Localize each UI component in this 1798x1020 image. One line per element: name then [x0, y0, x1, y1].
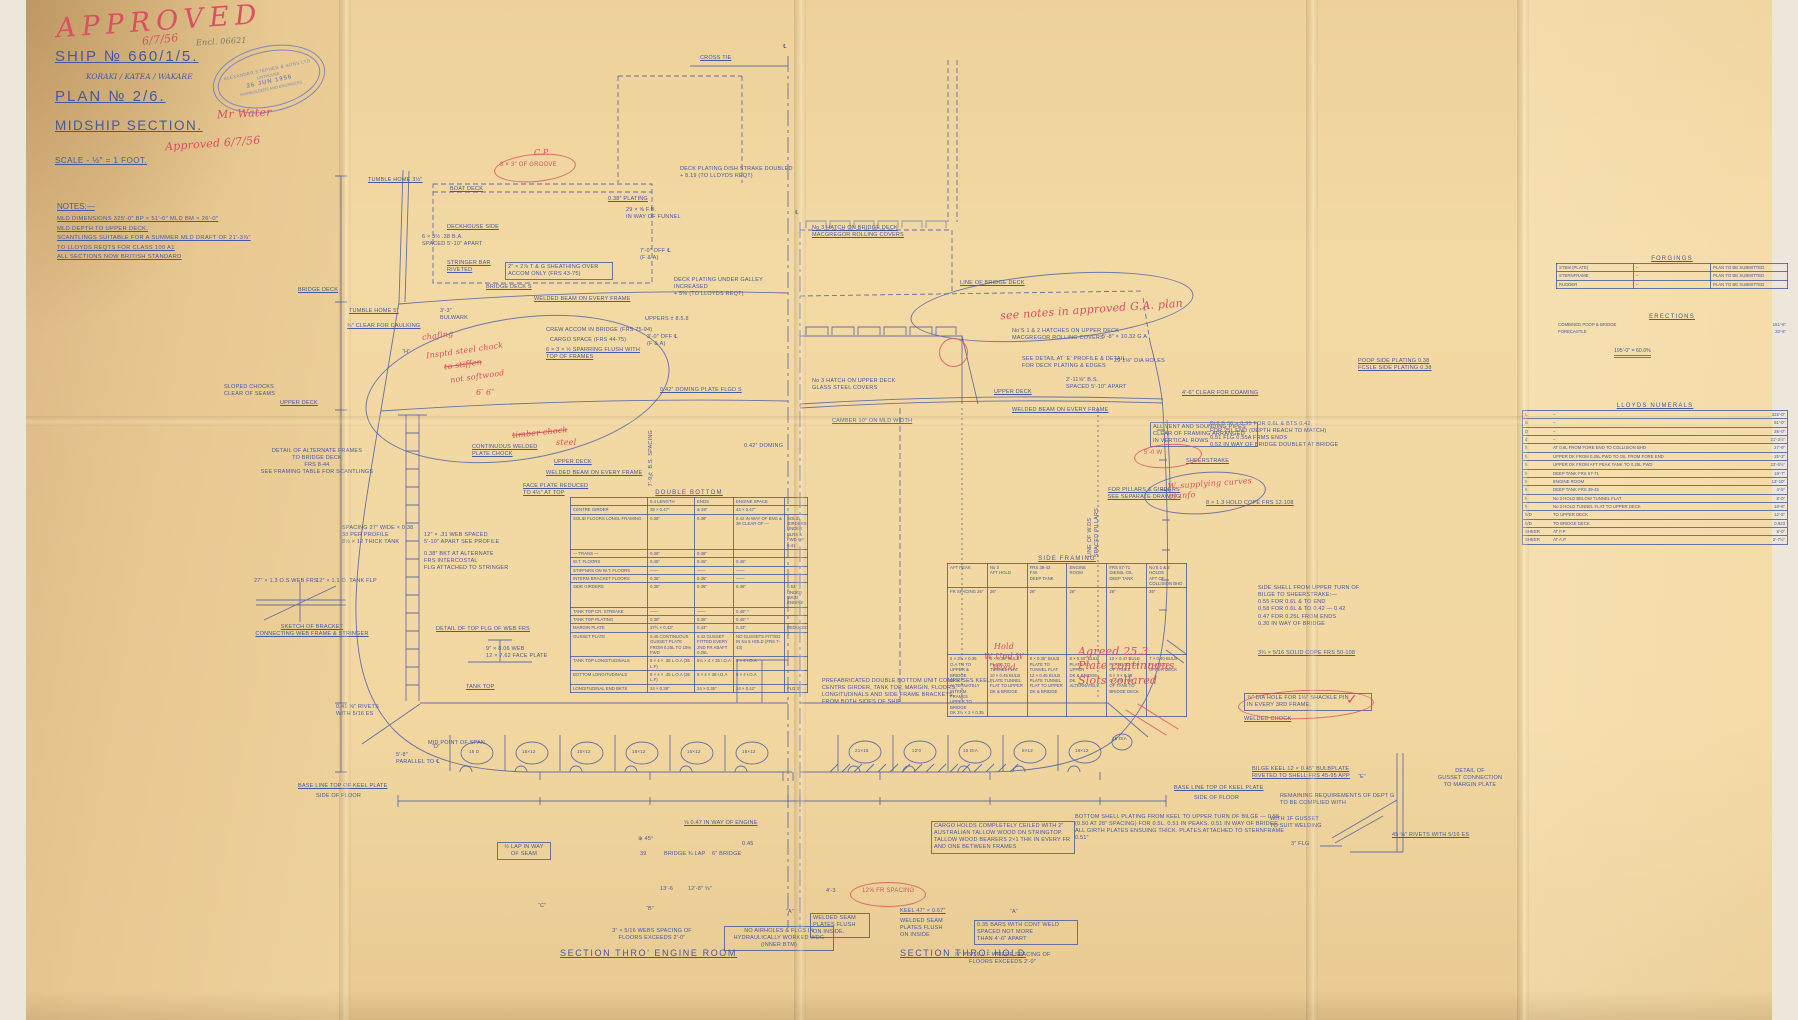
- annotation: 0.42″ DOMING PLATE FLGD S: [660, 387, 742, 394]
- annotation: “C”: [538, 903, 546, 910]
- double-bottom-title: DOUBLE BOTTOM: [570, 490, 808, 496]
- annotation: 0.38″ PLATING: [608, 196, 648, 203]
- annotation: SIDE OF FLOOR: [1194, 795, 1239, 802]
- annotation: 4′-6″ CLEAR FOR COAMING: [1182, 390, 1258, 397]
- annotation: 27″ × 1.3 O.S WEB FRS: [254, 578, 318, 585]
- annotation: BRIDGE DECK S: [486, 284, 532, 291]
- annotation: DECK PLATING UNDER GALLEY INCREASED + 5%…: [674, 277, 796, 298]
- annotation: WELDED BEAM ON EVERY FRAME: [546, 470, 642, 477]
- annotation: TANK TOP: [466, 684, 495, 691]
- annotation: KEEL 47″ × 0.67″: [900, 908, 946, 915]
- annotation: 3′-3″ BULWARK: [440, 308, 474, 322]
- annotation: 15×12: [687, 749, 701, 755]
- table-row: h/DTO UPPER DECK12′-5″: [1523, 511, 1788, 519]
- annotation: 15 D: [469, 749, 479, 755]
- annotation: BASE LINE TOP OF KEEL PLATE: [1174, 785, 1263, 792]
- handwritten-note: steel: [556, 438, 576, 448]
- annotation: DETAIL OF GUSSET CONNECTION TO MARGIN PL…: [1428, 768, 1512, 789]
- annotation: 12″ × 1.1 O. TANK FLP: [316, 578, 377, 585]
- notes-heading: NOTES:—: [57, 202, 95, 211]
- annotation: 3¼ × 5/16 SOLID COPE FRS 50-108: [1258, 650, 1355, 657]
- handwritten-note: 5′-0 W: [1144, 450, 1162, 458]
- annotation: 2″ × 2⅞ T & G SHEATHING OVER ACCOM ONLY …: [505, 262, 613, 280]
- annotation: 18×12: [632, 749, 646, 755]
- handwritten-note: 8 × 3″ OF GROOVE: [500, 162, 557, 170]
- annotation: BOTTOM SHELL PLATING FROM KEEL TO UPPER …: [1075, 814, 1285, 843]
- annotation: SECTION THRO’ ENGINE ROOM: [560, 948, 737, 960]
- annotation: WELDED BEAM ON EVERY FRAME: [534, 296, 630, 303]
- stamp-trade: SHIPBUILDERS AND ENGINEERS: [239, 79, 302, 97]
- table-row: SHEERAT A.P2′-7½″: [1523, 536, 1788, 544]
- annotation: 6 × 3½ .38 B.A. SPACED 5′-10″ APART: [422, 234, 494, 248]
- note-line: TO LLOYDS REQTS FOR CLASS 100 A1: [57, 244, 322, 254]
- lloyds-numerals-table: LLOYDS NUMERALS L–325′-0″ B–51′-0″ D–26′…: [1522, 403, 1788, 545]
- annotation: STRINGER BAR RIVETED: [447, 260, 499, 274]
- annotation: SLOPED CHOCKS CLEAR OF SEAMS: [224, 384, 286, 398]
- table-row: hDEEP TANK FRS 67-7118′-7″: [1523, 469, 1788, 477]
- table-row: hAT 0.6L FROM FORE END TO COLLISION BHD2…: [1523, 444, 1788, 452]
- annotation: BRIDGE ¾ LAP: [664, 851, 706, 858]
- annotation: SKETCH OF BRACKET CONNECTING WEB FRAME &…: [252, 624, 372, 638]
- table-row: COMBINED POOP & BRIDGE161′-6″: [1556, 321, 1788, 328]
- table-row: D–26′-0″: [1523, 427, 1788, 435]
- table-row: d–21′-3⅞″: [1523, 436, 1788, 444]
- annotation: “A”: [786, 909, 794, 916]
- ship-number: SHIP № 660/1/5.: [55, 48, 198, 65]
- sheet-bottom-shadow: [26, 990, 1772, 1020]
- handwritten-note: Agreed 25.3 Plate continuous Slots colla…: [1078, 645, 1174, 688]
- table-row: BOTTOM LONGITUDINALS8 × 4 × .45 L.O.A (3…: [571, 670, 808, 684]
- annotation: REMAINING REQUIREMENTS OF DEPT G TO BE C…: [1280, 793, 1412, 807]
- annotation: 15 DIA: [963, 748, 978, 754]
- handwritten-note: Mr Water: [217, 106, 272, 123]
- annotation: No 3 HATCH ON UPPER DECK GLASS STEEL COV…: [812, 378, 910, 392]
- note-line: MLD DIMENSIONS 325′-0″ BP × 51′-0″ MLD B…: [57, 215, 322, 225]
- annotation: BOAT DECK: [450, 186, 483, 193]
- annotation: 6″ BRIDGE: [712, 851, 741, 858]
- annotation: 12′0: [912, 748, 921, 754]
- annotation: 12′-8″ ⅝″: [688, 886, 712, 893]
- side-framing-table: SIDE FRAMING AFT PEAKNo 3 AFT HOLDFRS 38…: [947, 556, 1187, 717]
- handwritten-note: 12⅝ FR SPACING: [862, 888, 914, 896]
- table-row: TANK TOP PLATING0.38″0.36″0.45″ *: [571, 616, 808, 624]
- table-row: STEM (PLATE)–PLAN TO BE SUBMITTED: [1557, 264, 1788, 272]
- annotation: 7′-0″ OFF ℄ (F & A): [640, 248, 688, 262]
- stamp-date: 26 JUN 1956: [246, 74, 293, 90]
- annotation: SIDE SHELL FROM UPPER TURN OF BILGE TO S…: [1258, 585, 1382, 628]
- table-row: SHEERAT F.P8′-0″: [1523, 528, 1788, 536]
- annotation: “A”: [1010, 909, 1018, 916]
- annotation: 29 1⅛″ DIA HOLES: [1114, 358, 1172, 365]
- annotation: DETAIL OF ALTERNATE FRAMES TO BRIDGE DEC…: [258, 448, 376, 477]
- annotation: BILGE KEEL 12 × 0.45″ BULBPLATE RIVETED …: [1252, 766, 1374, 780]
- annotation: WITH 1F GUSSET TO SUIT WELDING: [1270, 816, 1332, 830]
- table-row: B–51′-0″: [1523, 419, 1788, 427]
- table-row: L–325′-0″: [1523, 411, 1788, 419]
- handwritten-note: ✓: [1346, 690, 1358, 708]
- annotation: SPACING 27″ WIDE × 0.38 38 PER PROFILE 8…: [342, 525, 422, 546]
- drawing-sheet: SHIP № 660/1/5. KORAKI / KATEA / WAKARE …: [0, 0, 1798, 1020]
- annotation: BULB 36 × 0.95 FOR 0.6L & BTS 0.42 FOR 2…: [1210, 421, 1342, 450]
- annotation: NO AIRHOLES & FLGS IN HYDRAULICALLY WORK…: [724, 926, 834, 951]
- annotation: BRIDGE DECK: [298, 287, 338, 294]
- stamp-company: ALEXANDER STEPHEN & SONS LTD: [216, 57, 318, 83]
- annotation: 8×12: [1022, 748, 1033, 754]
- annotation: ½ LAP IN WAY OF SEAM: [497, 842, 551, 860]
- annotation: 3″ × 5/16 WEBS SPACING OF FLOORS EXCEEDS…: [598, 928, 706, 942]
- table-row: INTERM BRACKET FLOORS0.36″0.35″——: [571, 574, 808, 582]
- forgings-table: FORGINGS STEM (PLATE)–PLAN TO BE SUBMITT…: [1556, 256, 1788, 289]
- table-row: STERNFRAME–PLAN TO BE SUBMITTED: [1557, 272, 1788, 280]
- annotation: 29 × ⅝ F.B. IN WAY OF FUNNEL: [626, 207, 688, 221]
- annotation: 18×12: [1075, 748, 1089, 754]
- erections-table: ERECTIONS COMBINED POOP & BRIDGE161′-6″ …: [1556, 314, 1788, 336]
- annotation: 2′-11⅝″ B.S. SPACED 5′-10″ APART: [1066, 377, 1138, 391]
- side-framing-title: SIDE FRAMING: [947, 556, 1187, 562]
- annotation: 18×12: [742, 749, 756, 755]
- table-row: h/DTO BRIDGE DECK0.823: [1523, 519, 1788, 527]
- note-line: SCANTLINGS SUITABLE FOR A SUMMER MLD DRA…: [57, 234, 322, 244]
- handwritten-note: Hold W Und W Wood: [984, 642, 1024, 673]
- table-row: 0.4 LENGTHENDSENGINE SPACE: [571, 498, 808, 506]
- table-row: W.T. FLOORS0.45″0.45″0.45″: [571, 558, 808, 566]
- double-bottom-table: DOUBLE BOTTOM 0.4 LENGTHENDSENGINE SPACE…: [570, 490, 808, 693]
- annotation: WELDED SEAM PLATES FLUSH ON INSIDE: [900, 918, 954, 939]
- annotation: “D”: [432, 744, 440, 751]
- annotation: 13′-6: [660, 886, 673, 893]
- annotation: 0.42″ DOMING: [744, 443, 783, 450]
- annotation: CROSS TIE: [700, 55, 731, 62]
- handwritten-note: C.P.: [534, 148, 549, 158]
- annotation: UPPER DECK: [554, 459, 592, 466]
- table-row: hDEEP TANK FRS 39-454′-5″: [1523, 486, 1788, 494]
- annotation: 21×15: [855, 748, 869, 754]
- table-row: hNo 3 HOLD TUNNEL FLAT TO UPPER DECK18′-…: [1523, 502, 1788, 510]
- annotation: ℄: [783, 44, 787, 51]
- annotation: TUMBLE HOME 3½″: [368, 177, 422, 184]
- annotation: 4′-3: [826, 888, 836, 895]
- annotation: WELDED BEAM ON EVERY FRAME: [1012, 407, 1108, 414]
- annotation: 0.35 BARS WITH CONT WELD SPACED NOT MORE…: [974, 920, 1078, 945]
- ship-names-handwritten: KORAKI / KATEA / WAKARE: [86, 72, 193, 81]
- table-row: hUPPER DK FROM 0.25L FWD TO OIL FROM FOR…: [1523, 452, 1788, 460]
- table-row: TANK TOP LONGITUDINALS8 × 4 × .38 L.O.A …: [571, 657, 808, 671]
- note-line: ALL SECTIONS NOW BRITISH STANDARD: [57, 253, 322, 263]
- table-row: TANK TOP CR. STREAKE————0.45″ *: [571, 607, 808, 615]
- plan-number: PLAN № 2/6.: [55, 88, 166, 105]
- annotation: 9″ × 8.06 WEB 12 × 7.62 FACE PLATE: [486, 646, 558, 660]
- annotation: UPPER DECK: [280, 400, 318, 407]
- annotation: 12″ × .31 WEB SPACED 5′-10″ APART SEE PR…: [424, 532, 512, 546]
- annotation: ¾″ CLEAR FOR CAULKING: [347, 323, 420, 330]
- annotation: “B”: [646, 906, 654, 913]
- annotation: 7′-9⅝ B.S. SPACING: [648, 430, 655, 486]
- annotation: CAMBER 10″ ON MLD WIDTH: [832, 418, 912, 425]
- annotation: SECTION THRO’ HOLD: [900, 948, 1026, 960]
- annotation: No 3 HATCH ON BRIDGE DECK MACGREGOR ROLL…: [812, 225, 914, 239]
- notes-list: MLD DIMENSIONS 325′-0″ BP × 51′-0″ MLD B…: [57, 215, 322, 263]
- annotation: TUMBLE HOME 5″: [349, 308, 399, 315]
- annotation: 15 DIA: [1112, 736, 1127, 742]
- annotation: 15×12: [577, 749, 591, 755]
- table-row: AFT PEAKNo 3 AFT HOLDFRS 38-43 F.W. DEEP…: [948, 564, 1187, 588]
- annotation: 45 ⅝″ RIVETS WITH 5/16 ES: [1392, 832, 1469, 839]
- table-row: hUPPER DK FROM AFT PEAK TANK TO 0.25L FW…: [1523, 461, 1788, 469]
- annotation: UPPERS ± 8.5.8: [645, 316, 689, 323]
- annotation: ℄: [795, 210, 799, 217]
- annotation: POOP SIDE PLATING 0.38 FCSLE SIDE PLATIN…: [1358, 358, 1450, 372]
- annotation: SIDE OF FLOOR: [316, 793, 361, 800]
- table-row: MARGIN PLATE37½ × 0.43″0.43″0.43″REDUCED: [571, 624, 808, 632]
- annotation: 39: [640, 851, 647, 858]
- annotation: DECK PLATING DISH STRAKE DOUBLED + 8.19 …: [680, 166, 798, 180]
- revision-mark: [939, 338, 968, 367]
- table-row: GUSSET PLATE0.45 CONTINUOUS GUSSET PLATE…: [571, 632, 808, 656]
- annotation: 5′-8″ × 10.32 G A: [1102, 334, 1147, 341]
- table-row: hENGINE ROOM13′-10″: [1523, 477, 1788, 485]
- table-row: CENTRE GIRDER38 × 0.47″& 38″44 × 0.47″: [571, 506, 808, 514]
- annotation: 5′-8″ PARALLEL TO ℄: [396, 752, 448, 766]
- scale-note: SCALE - ½″ = 1 FOOT.: [55, 156, 147, 165]
- table-row: — TRANS —0.38″0.38″: [571, 549, 808, 557]
- erections-total: 195′-0″ = 60.0%: [1614, 348, 1651, 358]
- annotation: BASE LINE TOP OF KEEL PLATE: [298, 783, 387, 790]
- table-row: RUDDER–PLAN TO BE SUBMITTED: [1557, 280, 1788, 288]
- stamp-place: LINTHOUSE: [257, 71, 280, 81]
- annotation: 0.45: [742, 841, 754, 848]
- annotation: DETAIL OF TOP FLG OF WEB FRS: [436, 626, 530, 633]
- handwritten-note: 6′ 6″: [476, 388, 495, 398]
- table-row: FORECASTLE33′-6″: [1556, 328, 1788, 335]
- annotation: 18×12: [522, 749, 536, 755]
- annotation: LINE OF W.DS SPACED PILLARS: [1087, 508, 1101, 557]
- annotation: 0.41 ⅝″ RIVETS WITH 5/16 ES: [336, 704, 394, 718]
- annotation: 3″ FLG: [1291, 841, 1309, 848]
- erections-title: ERECTIONS: [1556, 314, 1788, 320]
- table-row: STIFFNRS ON W.T. FLOORS——————: [571, 566, 808, 574]
- lloyds-numerals-title: LLOYDS NUMERALS: [1522, 403, 1788, 409]
- annotation: ⅝ 0.47 IN WAY OF ENGINE: [684, 820, 758, 827]
- table-row: hNo 3 HOLD BELOW TUNNEL FLAT8′-0″: [1523, 494, 1788, 502]
- annotation: CARGO HOLDS COMPLETELY CEILED WITH 2″ AU…: [931, 821, 1075, 854]
- forgings-title: FORGINGS: [1556, 256, 1788, 262]
- annotation: ⊕ 45°: [638, 836, 653, 843]
- table-row: LONGITUDINAL END BKTS24 × 0.38″24 × 0.35…: [571, 684, 808, 692]
- drawing-title: MIDSHIP SECTION.: [55, 118, 203, 133]
- note-line: MLD DEPTH TO UPPER DECK.: [57, 225, 322, 235]
- annotation: DECKHOUSE SIDE: [447, 224, 499, 231]
- annotation: UPPER DECK: [994, 389, 1032, 396]
- annotation: 0.38″ BKT AT ALTERNATE FRS INTERCOSTAL F…: [424, 551, 516, 572]
- table-row: SIDE GIRDERS0.35″0.35″0.38″0.52 UNDER MA…: [571, 583, 808, 607]
- table-row: SOLID FLOORS LONGL FRAMING0.38″0.38″0.42…: [571, 514, 808, 549]
